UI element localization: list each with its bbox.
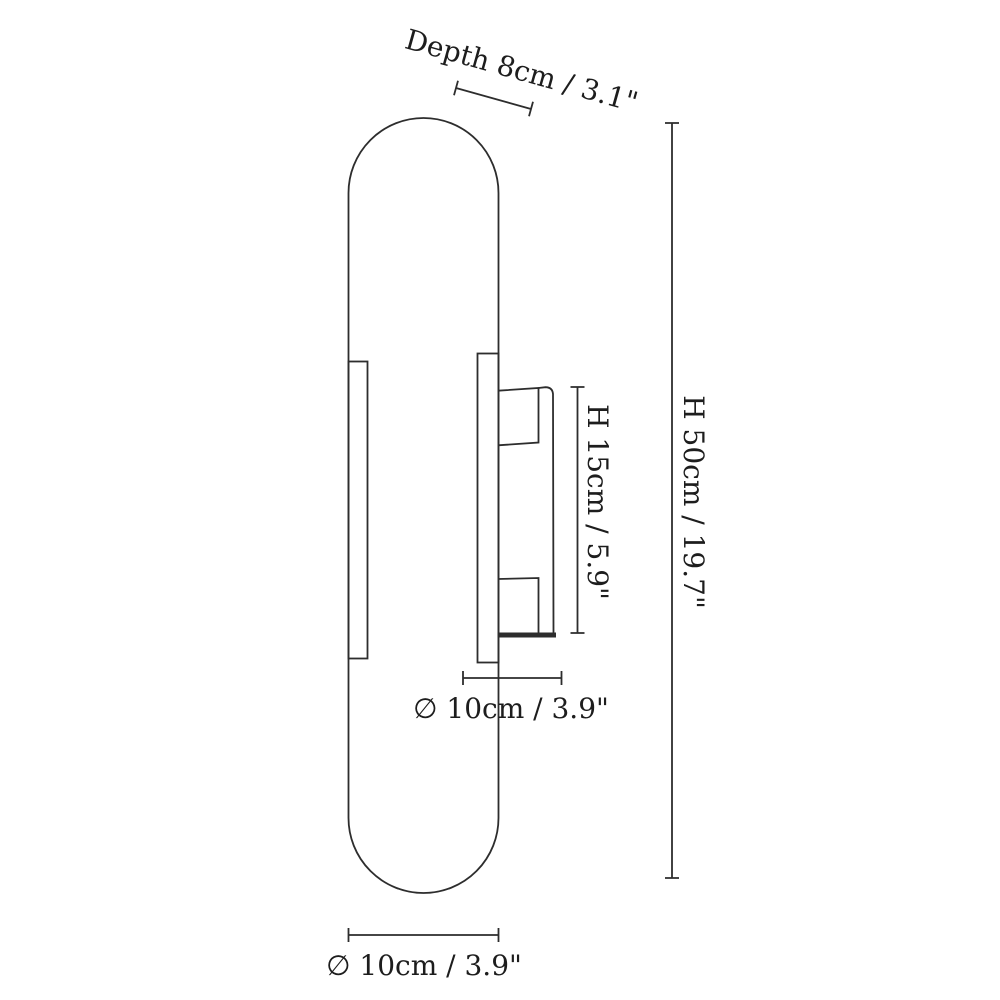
wall-sconce-technical-drawing: Depth 8cm / 3.1" H 50cm / 19.7" H 15cm /… bbox=[0, 0, 1000, 1000]
bottom-diameter-dimension-line bbox=[349, 928, 499, 942]
mid-diameter-dimension-line bbox=[463, 671, 562, 685]
back-plate bbox=[478, 354, 499, 663]
fixture-height-label: H 15cm / 5.9" bbox=[581, 404, 614, 600]
socket-bottom bbox=[498, 578, 539, 633]
total-height-label: H 50cm / 19.7" bbox=[677, 395, 710, 609]
inner-tube-edge bbox=[349, 362, 368, 659]
bottom-diameter-label: ∅ 10cm / 3.9" bbox=[326, 949, 522, 982]
depth-label: Depth 8cm / 3.1" bbox=[402, 23, 642, 119]
dimension-diagram: Depth 8cm / 3.1" H 50cm / 19.7" H 15cm /… bbox=[0, 0, 1000, 1000]
lamp-body-outline bbox=[349, 118, 499, 893]
socket-top bbox=[498, 388, 539, 445]
total-height-dimension-line bbox=[665, 123, 679, 878]
bracket-side bbox=[539, 387, 554, 633]
mid-diameter-label: ∅ 10cm / 3.9" bbox=[413, 692, 609, 725]
